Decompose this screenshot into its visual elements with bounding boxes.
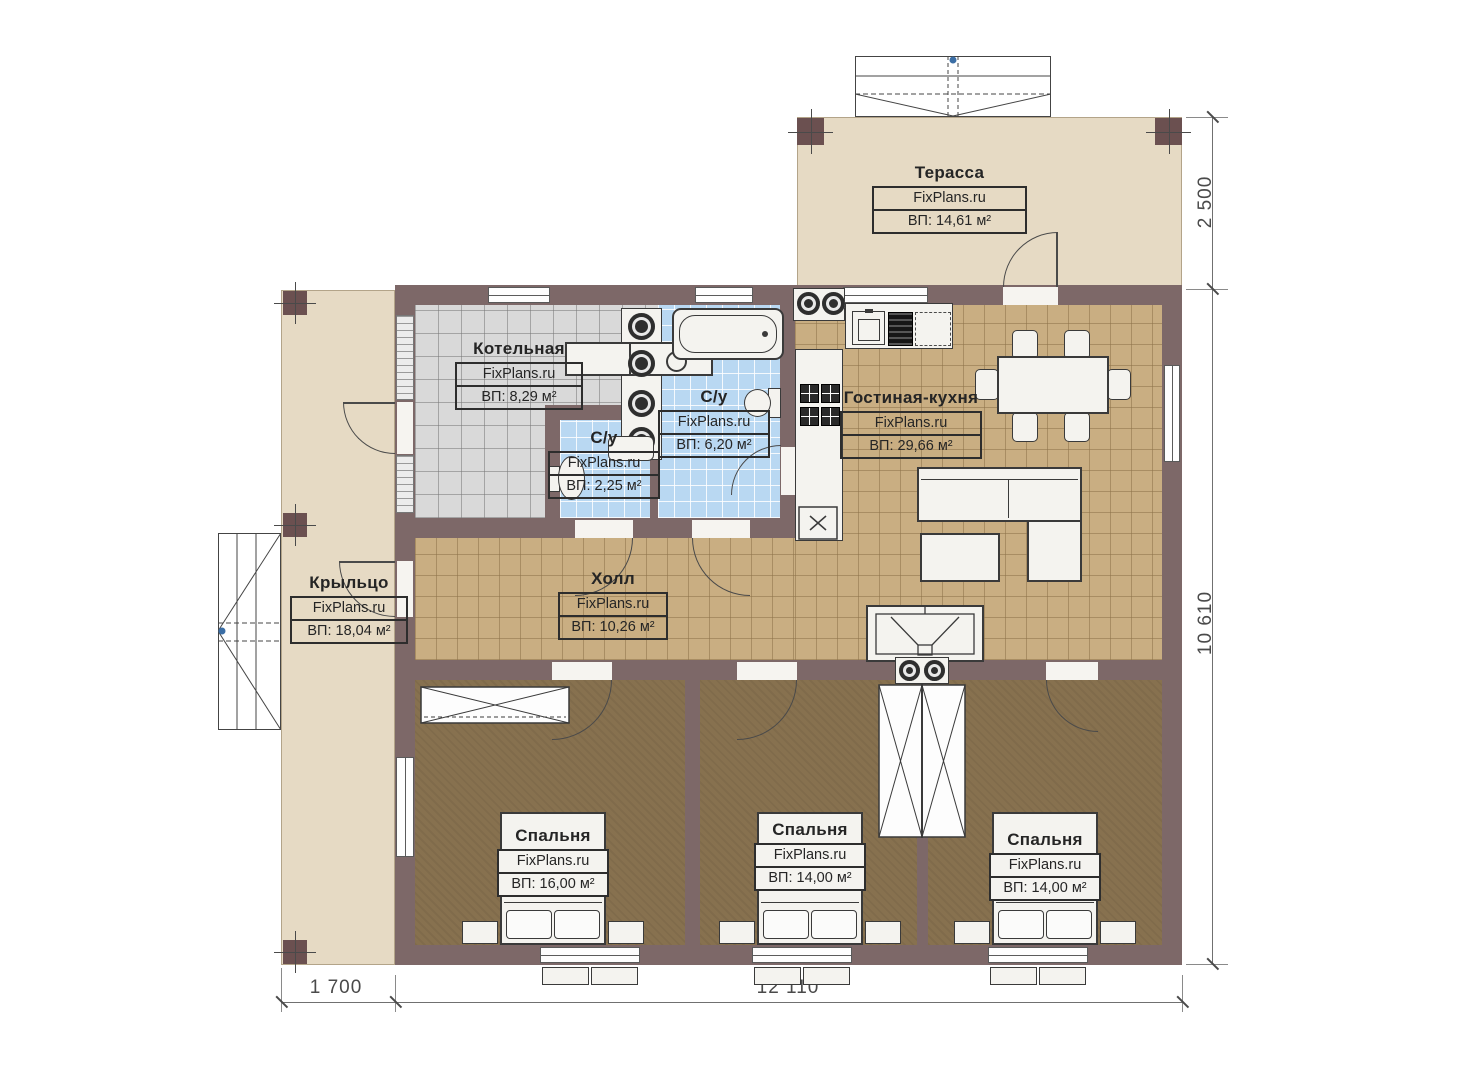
room-area: ВП: 2,25 м²	[550, 476, 658, 497]
floor-plan: Терасса FixPlans.ru ВП: 14,61 м² Котельн…	[0, 0, 1473, 1080]
room-info-box: FixPlans.ru ВП: 18,04 м²	[290, 596, 408, 644]
oven-icon	[821, 384, 840, 403]
room-label-bedroom-3: Спальня FixPlans.ru ВП: 14,00 м²	[989, 830, 1101, 901]
door-gap-bathroom-large	[692, 520, 750, 538]
room-label-bedroom-2: Спальня FixPlans.ru ВП: 14,00 м²	[754, 820, 866, 891]
room-name: С/у	[658, 387, 770, 407]
dimension-extension	[281, 968, 282, 1012]
dimension-house-depth: 10 610	[1195, 573, 1217, 673]
dimension-extension	[1182, 975, 1183, 1012]
window-living-right	[1164, 365, 1180, 462]
nightstand	[865, 921, 901, 944]
terrace-stairs	[855, 56, 1051, 117]
pillow	[811, 910, 857, 939]
room-info-box: FixPlans.ru ВП: 10,26 м²	[558, 592, 668, 640]
room-label-boiler: Котельная FixPlans.ru ВП: 8,29 м²	[455, 339, 583, 410]
chimney-flue-icon	[899, 660, 920, 681]
room-name: Холл	[558, 569, 668, 589]
door-gap-bedroom-2	[737, 662, 797, 680]
room-info-box: FixPlans.ru ВП: 2,25 м²	[548, 451, 660, 499]
window-sill-box	[754, 967, 801, 985]
sofa	[917, 467, 1082, 522]
dimension-line-bottom	[281, 1002, 1182, 1003]
dining-chair	[1107, 369, 1131, 400]
nightstand	[954, 921, 990, 944]
porch-post-top	[283, 291, 307, 315]
terrace-post-left	[797, 118, 824, 145]
door-gap-bedroom-3	[1046, 662, 1098, 680]
dining-table	[997, 356, 1109, 414]
room-area: ВП: 14,00 м²	[756, 868, 864, 889]
upper-cabinet-dashed	[915, 312, 951, 346]
oven-icon	[800, 384, 819, 403]
nightstand	[719, 921, 755, 944]
oven-icon	[800, 407, 819, 426]
sink-faucet	[865, 309, 873, 313]
room-info-box: FixPlans.ru ВП: 29,66 м²	[840, 411, 982, 459]
window-top-boiler	[488, 287, 550, 303]
room-name: Котельная	[455, 339, 583, 359]
window-bedroom-2-bottom	[752, 947, 852, 963]
room-info-box: FixPlans.ru ВП: 14,61 м²	[872, 186, 1027, 234]
room-area: ВП: 29,66 м²	[842, 436, 980, 457]
room-area: ВП: 10,26 м²	[560, 617, 666, 638]
dimension-porch-width: 1 700	[286, 977, 386, 999]
pillow	[1046, 910, 1092, 939]
window-sill-box	[542, 967, 589, 985]
room-info-box: FixPlans.ru ВП: 14,00 м²	[989, 853, 1101, 901]
brand-watermark: FixPlans.ru	[991, 855, 1099, 878]
room-label-living-kitchen: Гостиная-кухня FixPlans.ru ВП: 29,66 м²	[840, 388, 982, 459]
room-label-bedroom-1: Спальня FixPlans.ru ВП: 16,00 м²	[497, 826, 609, 897]
room-info-box: FixPlans.ru ВП: 16,00 м²	[497, 849, 609, 897]
brand-watermark: FixPlans.ru	[756, 845, 864, 868]
room-area: ВП: 14,61 м²	[874, 211, 1025, 232]
room-name: Спальня	[989, 830, 1101, 850]
brand-watermark: FixPlans.ru	[457, 364, 581, 387]
window-bedroom-1-left	[396, 757, 414, 857]
boiler-unit-icon	[628, 390, 655, 417]
door-gap-bathroom-small	[575, 520, 633, 538]
sofa-chaise	[1027, 520, 1082, 582]
porch-stairs	[218, 533, 281, 730]
door-leaf-porch-hall	[339, 561, 395, 563]
door-gap-porch-boiler	[397, 402, 413, 454]
door-leaf-porch-boiler	[343, 402, 395, 404]
washing-machine-icon	[628, 313, 655, 340]
brand-watermark: FixPlans.ru	[550, 453, 658, 476]
brand-watermark: FixPlans.ru	[292, 598, 406, 621]
window-sill-box	[803, 967, 850, 985]
pillow	[554, 910, 600, 939]
door-gap-bedroom-1	[552, 662, 612, 680]
room-label-hall: Холл FixPlans.ru ВП: 10,26 м²	[558, 569, 668, 640]
washing-machine-icon	[628, 350, 655, 377]
room-info-box: FixPlans.ru ВП: 8,29 м²	[455, 362, 583, 410]
room-label-bathroom-small: С/у FixPlans.ru ВП: 2,25 м²	[548, 428, 660, 499]
coffee-table	[920, 533, 1000, 582]
window-top-bathroom	[695, 287, 753, 303]
sink-basin	[858, 319, 880, 341]
oven-icon	[821, 407, 840, 426]
stove-burner-icon	[822, 292, 845, 315]
room-area: ВП: 16,00 м²	[499, 874, 607, 895]
wardrobe-bedroom-1	[420, 686, 570, 724]
door-gap-terrace	[1003, 287, 1058, 305]
pillow	[506, 910, 552, 939]
room-name: Гостиная-кухня	[840, 388, 982, 408]
room-name: Спальня	[754, 820, 866, 840]
pillow	[763, 910, 809, 939]
dimension-extension	[1186, 289, 1228, 290]
terrace-post-right	[1155, 118, 1182, 145]
porch-post-bottom	[283, 940, 307, 964]
room-info-box: FixPlans.ru ВП: 14,00 м²	[754, 843, 866, 891]
window-kitchen-terrace	[843, 287, 928, 303]
dining-chair	[1064, 412, 1090, 442]
dimension-extension	[1186, 964, 1228, 965]
dimension-terrace-depth: 2 500	[1195, 152, 1217, 252]
chimney-flue-icon	[924, 660, 945, 681]
door-gap-bathroom-side	[781, 447, 795, 495]
room-area: ВП: 14,00 м²	[991, 878, 1099, 899]
room-label-terrace: Терасса FixPlans.ru ВП: 14,61 м²	[872, 163, 1027, 234]
brand-watermark: FixPlans.ru	[660, 412, 768, 435]
window-bedroom-1-bottom	[540, 947, 640, 963]
porch-post-middle	[283, 513, 307, 537]
room-area: ВП: 8,29 м²	[457, 387, 581, 408]
window-boiler-left-2	[396, 455, 414, 513]
nightstand	[1100, 921, 1136, 944]
window-sill-box	[990, 967, 1037, 985]
brand-watermark: FixPlans.ru	[560, 594, 666, 617]
window-boiler-left-1	[396, 315, 414, 400]
dishwasher	[888, 312, 913, 346]
fireplace	[866, 605, 984, 662]
dimension-extension	[1186, 117, 1228, 118]
room-label-porch: Крыльцо FixPlans.ru ВП: 18,04 м²	[290, 573, 408, 644]
window-sill-box	[1039, 967, 1086, 985]
brand-watermark: FixPlans.ru	[499, 851, 607, 874]
stove-burner-icon	[797, 292, 820, 315]
room-name: Крыльцо	[290, 573, 408, 593]
room-name: Терасса	[872, 163, 1027, 183]
bathtub-drain	[762, 331, 768, 337]
dimension-extension	[395, 975, 396, 1012]
room-area: ВП: 18,04 м²	[292, 621, 406, 642]
room-info-box: FixPlans.ru ВП: 6,20 м²	[658, 410, 770, 458]
room-area: ВП: 6,20 м²	[660, 435, 768, 456]
room-label-bathroom-large: С/у FixPlans.ru ВП: 6,20 м²	[658, 387, 770, 458]
wardrobe-shared	[878, 684, 966, 838]
kitchen-module-x	[798, 506, 838, 540]
pillow	[998, 910, 1044, 939]
brand-watermark: FixPlans.ru	[874, 188, 1025, 211]
door-leaf-terrace	[1056, 232, 1058, 287]
kitchen-sink	[852, 311, 885, 345]
dining-chair	[1012, 412, 1038, 442]
brand-watermark: FixPlans.ru	[842, 413, 980, 436]
room-name: Спальня	[497, 826, 609, 846]
bathtub	[672, 308, 784, 360]
window-bedroom-3-bottom	[988, 947, 1088, 963]
room-name: С/у	[548, 428, 660, 448]
nightstand	[608, 921, 644, 944]
window-sill-box	[591, 967, 638, 985]
nightstand	[462, 921, 498, 944]
